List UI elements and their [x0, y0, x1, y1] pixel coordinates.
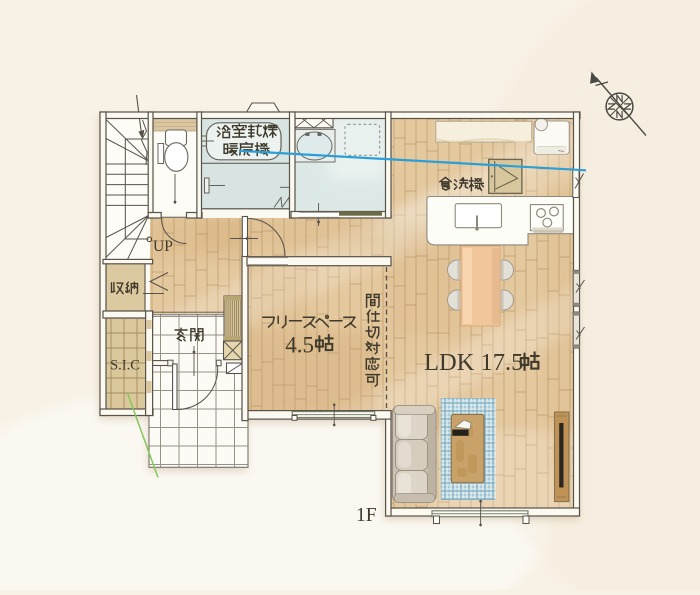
svg-text:4.5: 4.5: [285, 333, 314, 358]
svg-text:UP: UP: [153, 238, 173, 255]
svg-text:1F: 1F: [356, 505, 377, 526]
svg-text:LDK 17.5: LDK 17.5: [424, 349, 523, 376]
svg-text:S.I.C: S.I.C: [110, 358, 140, 374]
